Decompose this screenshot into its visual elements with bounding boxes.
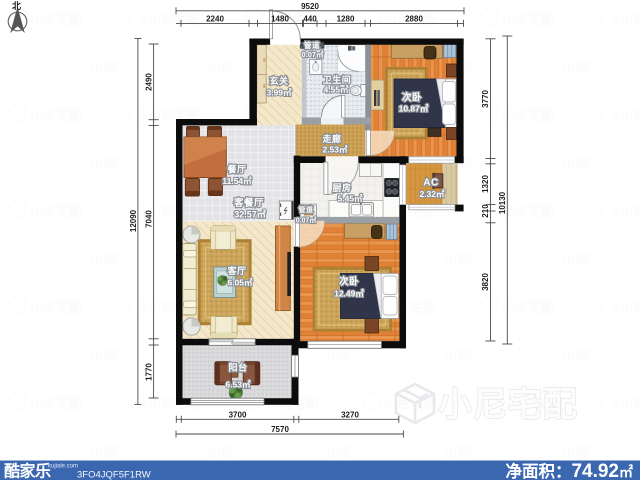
svg-text:32.57㎡: 32.57㎡ (234, 209, 266, 220)
svg-text:管道: 管道 (304, 40, 320, 50)
svg-text:厨房: 厨房 (332, 182, 351, 193)
svg-text:3270: 3270 (341, 410, 359, 419)
svg-text:2.32㎡: 2.32㎡ (419, 189, 445, 199)
svg-text:2490: 2490 (145, 73, 154, 91)
svg-text:2.53㎡: 2.53㎡ (322, 145, 348, 155)
svg-text:0.07㎡: 0.07㎡ (301, 49, 324, 59)
svg-text:次卧: 次卧 (402, 92, 422, 104)
svg-text:12.49㎡: 12.49㎡ (334, 289, 364, 299)
svg-text:7040: 7040 (145, 210, 154, 228)
svg-text:2880: 2880 (405, 14, 423, 23)
svg-text:2240: 2240 (206, 14, 224, 23)
svg-text:管道: 管道 (299, 205, 314, 214)
svg-text:3770: 3770 (481, 90, 490, 108)
svg-text:餐厅: 餐厅 (226, 164, 246, 175)
svg-text:酷家乐: 酷家乐 (4, 462, 51, 480)
svg-text:3820: 3820 (481, 273, 490, 291)
svg-text:卫生间: 卫生间 (323, 74, 352, 85)
svg-text:北: 北 (12, 0, 21, 11)
svg-text:AC: AC (423, 178, 438, 189)
svg-text:0.07㎡: 0.07㎡ (296, 216, 317, 225)
svg-text:1320: 1320 (481, 175, 490, 193)
svg-text:1770: 1770 (145, 363, 154, 381)
svg-text:3.99㎡: 3.99㎡ (266, 88, 292, 98)
svg-text:次卧: 次卧 (339, 276, 359, 288)
svg-text:小尼宅配: 小尼宅配 (438, 385, 578, 424)
svg-text:1480: 1480 (271, 14, 289, 23)
svg-text:210: 210 (481, 204, 490, 218)
svg-text:6.53㎡: 6.53㎡ (225, 380, 251, 390)
svg-text:5.45㎡: 5.45㎡ (337, 194, 363, 204)
svg-text:10.87㎡: 10.87㎡ (399, 104, 429, 114)
svg-text:kujiale.com: kujiale.com (48, 464, 78, 470)
svg-text:11.54㎡: 11.54㎡ (222, 176, 252, 186)
svg-text:9520: 9520 (301, 2, 319, 11)
svg-text:玄关: 玄关 (269, 75, 288, 86)
svg-text:阳台: 阳台 (228, 362, 247, 373)
svg-text:客餐厅: 客餐厅 (233, 197, 264, 209)
svg-text:10130: 10130 (498, 191, 507, 214)
svg-text:3FO4JQF5F1RW: 3FO4JQF5F1RW (77, 470, 151, 480)
svg-text:6.05㎡: 6.05㎡ (227, 278, 253, 288)
svg-text:440: 440 (303, 14, 317, 23)
svg-text:3700: 3700 (229, 410, 247, 419)
svg-text:7570: 7570 (271, 425, 289, 434)
svg-text:净面积：74.92㎡: 净面积：74.92㎡ (505, 461, 633, 480)
svg-text:1280: 1280 (337, 14, 355, 23)
svg-text:12090: 12090 (129, 209, 138, 232)
svg-text:4.55㎡: 4.55㎡ (323, 85, 349, 95)
svg-text:走廊: 走廊 (321, 133, 341, 144)
svg-text:客厅: 客厅 (226, 265, 246, 276)
